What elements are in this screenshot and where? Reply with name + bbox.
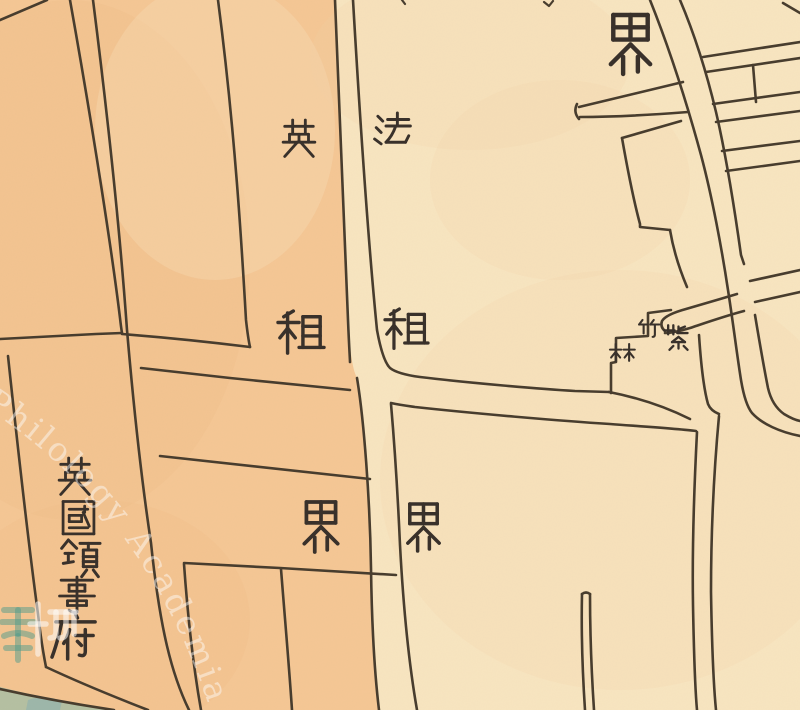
map-canvas[interactable]: Philology Academia Sinica I [0,0,800,710]
paper-grain [0,0,800,710]
